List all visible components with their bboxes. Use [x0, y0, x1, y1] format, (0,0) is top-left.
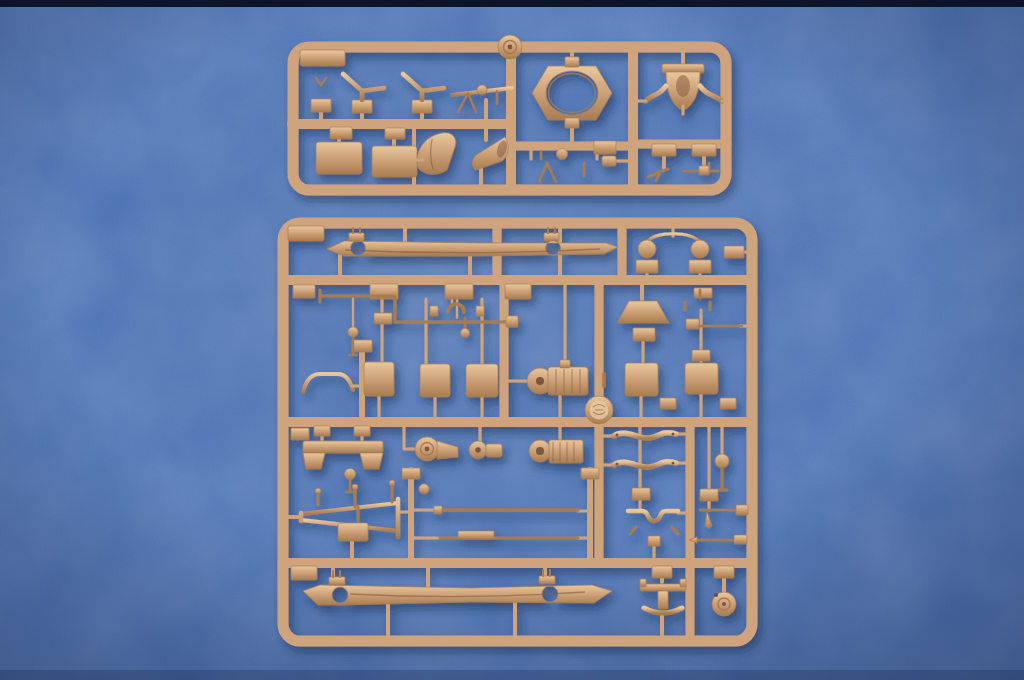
transfer-case-hole — [536, 377, 544, 385]
panel-1 — [364, 362, 394, 396]
bench-seat-hanger-2 — [354, 426, 370, 436]
machine-gun-small-drum — [477, 85, 487, 95]
w-bracket-pedestal — [648, 536, 660, 546]
corner-gusset-2 — [288, 226, 324, 241]
storage-box-2-hanger — [385, 128, 405, 139]
hump-bracket-hanger — [632, 488, 650, 500]
lampshade-step-block — [633, 328, 655, 341]
tow-a-frame-box — [338, 523, 368, 541]
rail2-hanger-1 — [329, 577, 345, 585]
transfer-case-nub — [560, 360, 570, 368]
teardrop-rod-2-block — [734, 535, 747, 544]
t-rod-block — [699, 166, 709, 175]
i-beam-top-flange — [640, 584, 686, 591]
teardrop-rod-1-hanger — [700, 489, 718, 501]
tow-a-frame-stud-cap-2 — [352, 484, 358, 490]
mg-ring-mount-tab-bottom — [565, 118, 579, 128]
top-edge-strip — [0, 0, 1024, 7]
runner-vh-block — [581, 468, 599, 479]
idler-drum-hanger — [714, 566, 734, 578]
rail2-hanger-2 — [539, 576, 555, 584]
storage-box-1 — [316, 142, 362, 174]
storage-box-1-hanger — [330, 127, 352, 139]
panel-right-2-hanger — [692, 350, 710, 361]
idler-drum-hub — [722, 602, 726, 606]
transfer-case-body — [548, 367, 588, 395]
runner-vg-block — [402, 468, 420, 479]
headlight-block-1 — [636, 260, 658, 273]
bottom-edge-shade — [0, 670, 1024, 680]
side-block-2 — [720, 398, 736, 409]
axle-rod-2-block — [458, 531, 494, 539]
axle-differential-small-housing — [486, 444, 502, 457]
storage-box-2 — [372, 146, 417, 177]
clamp-foot-1 — [430, 306, 438, 316]
i-beam-web — [658, 591, 668, 609]
frame-edge-block — [724, 246, 744, 258]
seat-knob-ball — [345, 469, 356, 480]
panel-right-2 — [685, 363, 718, 394]
photo-model-kit-sprues — [0, 0, 1024, 680]
teardrop-rod-1-block — [736, 505, 748, 515]
axle-rod-1-collar — [434, 506, 442, 514]
panel-2 — [420, 364, 450, 397]
scene-canvas — [0, 0, 1024, 680]
headlight-ball-2 — [691, 240, 709, 258]
bench-seat-flap-left — [303, 453, 325, 469]
axle-differential-large-foot — [419, 484, 429, 494]
mushroom-knob-1 — [461, 329, 470, 338]
bracket-bar-block — [694, 288, 712, 298]
bracket-left — [652, 144, 676, 156]
axle-differential-large-hole — [425, 447, 430, 452]
axle-differential-small-hole — [475, 447, 481, 453]
bench-seat-flap-right — [360, 453, 383, 469]
sway-bar-2-hole-r — [672, 462, 675, 465]
panel-right-1 — [625, 363, 658, 396]
thin-rod-block — [686, 319, 699, 329]
sway-bar-1-hole-l — [616, 434, 619, 437]
row2-left-block — [293, 285, 315, 298]
rust-dot — [714, 593, 718, 597]
i-beam-hanger — [652, 566, 672, 578]
mg34-stock — [602, 156, 616, 166]
mushroom-knob-2 — [348, 327, 358, 337]
chassis-rail-left — [303, 585, 612, 605]
gun-shield-hollow — [676, 75, 690, 97]
clamp-foot-2 — [476, 306, 484, 316]
axle-housing-body — [549, 440, 583, 463]
row3-left-block — [291, 428, 309, 440]
sway-bar-1-hole-r — [672, 433, 675, 436]
row4-left-block — [291, 566, 317, 580]
corner-gusset — [300, 50, 345, 66]
mg34-drum — [557, 149, 568, 160]
panel-3 — [466, 364, 498, 397]
hanger-block-b — [445, 284, 473, 299]
bench-seat — [303, 441, 383, 453]
chassis-rail-right — [327, 241, 618, 256]
hanger-step-a — [374, 313, 392, 324]
i-beam-tab-left — [640, 579, 646, 587]
mg-ring-mount-tab-top — [565, 57, 579, 67]
ball-lever-ball — [715, 454, 729, 468]
side-block-1 — [660, 398, 676, 409]
runner-vf-block — [352, 340, 372, 352]
tow-a-frame-stud-cap-3 — [389, 480, 395, 486]
fork-pin-base — [311, 99, 331, 112]
rail1-hanger-2 — [544, 233, 559, 241]
headlight-block-2 — [689, 260, 711, 273]
hub-disc-hole — [508, 45, 513, 50]
bracket-right — [692, 144, 716, 156]
rail1-hanger-1 — [349, 233, 364, 241]
sway-bar-2-hole-l — [616, 463, 619, 466]
i-beam-tab-right — [680, 579, 686, 587]
bench-seat-hanger-1 — [314, 426, 330, 436]
ammo-box — [594, 141, 616, 154]
steering-linkage-end — [506, 316, 518, 327]
tow-a-frame-stud-cap-1 — [315, 488, 321, 494]
axle-housing-hole — [536, 447, 544, 455]
headlight-ball-1 — [638, 240, 656, 258]
hanger-block-c — [505, 284, 531, 299]
